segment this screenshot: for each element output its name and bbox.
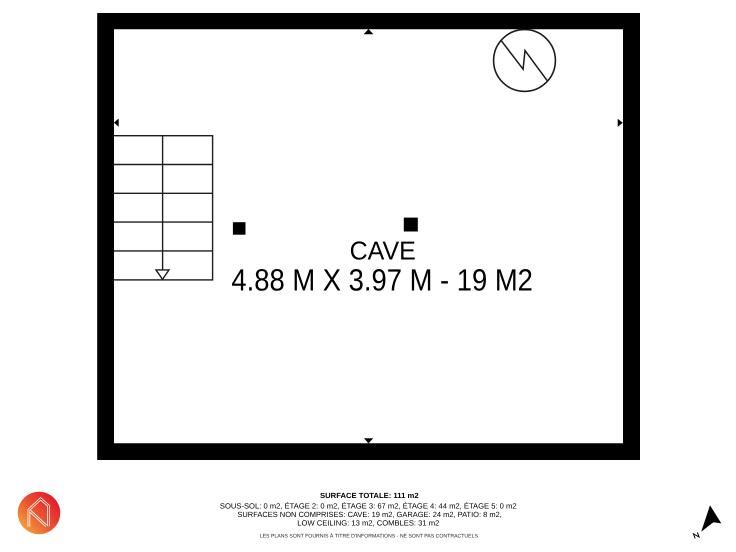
svg-text:CAVE: CAVE (350, 237, 416, 265)
svg-text:4.88 M X 3.97 M - 19 M2: 4.88 M X 3.97 M - 19 M2 (231, 263, 533, 298)
svg-text:LOW CEILING: 13 m2, COMBLES: 3: LOW CEILING: 13 m2, COMBLES: 31 m2 (297, 518, 439, 527)
svg-text:SOUS-SOL: 0 m2, ÉTAGE 2: 0 m2,: SOUS-SOL: 0 m2, ÉTAGE 2: 0 m2, ÉTAGE 3: … (220, 501, 517, 510)
svg-text:LES PLANS SONT FOURNIS À TITRE: LES PLANS SONT FOURNIS À TITRE D'INFORMA… (260, 533, 479, 540)
svg-text:SURFACE TOTALE: 111 m2: SURFACE TOTALE: 111 m2 (320, 491, 419, 500)
